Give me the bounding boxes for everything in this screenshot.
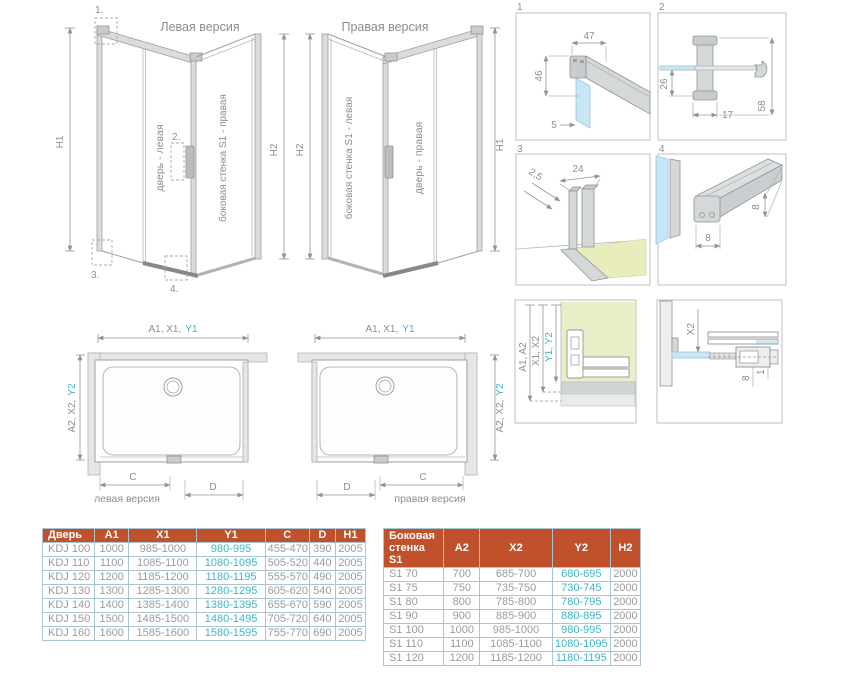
dim-c-label: C: [129, 472, 136, 483]
dim-17-label: 17: [722, 110, 734, 121]
dim-d-label: D: [343, 482, 350, 493]
plan-view-left: A1, X1,Y1 A2, X2,Y2 C D левая версия: [55, 318, 290, 518]
h1-dimension-label: H1: [55, 135, 66, 148]
table-cell: 700: [444, 568, 480, 582]
table-cell: 490: [309, 571, 335, 585]
h1-dimension: H1: [490, 28, 506, 251]
door-label: дверь - правая: [413, 122, 425, 194]
table-cell: 980-995: [197, 543, 265, 557]
dim-5-label: 5: [551, 120, 557, 131]
table-cell: 2005: [335, 627, 365, 641]
table-cell: 2005: [335, 571, 365, 585]
table-cell: 985-1000: [480, 624, 552, 638]
table-cell: 1580-1595: [197, 627, 265, 641]
table-cell: 455-470: [265, 543, 309, 557]
table-cell: KDJ 160: [43, 627, 95, 641]
table-row: KDJ 16016001585-16001580-1595755-7706902…: [43, 627, 366, 641]
left-version-title: Левая версия: [160, 20, 239, 34]
table-row: S1 1001000985-1000980-9952000: [384, 624, 641, 638]
column-header: H1: [335, 529, 365, 543]
table-cell: KDJ 100: [43, 543, 95, 557]
table-row: KDJ 15015001485-15001480-1495705-7206402…: [43, 613, 366, 627]
dim-c: C: [100, 472, 170, 490]
table-cell: 780-795: [552, 596, 610, 610]
table-cell: 685-700: [480, 568, 552, 582]
table-cell: 2005: [335, 557, 365, 571]
table-cell: 785-800: [480, 596, 552, 610]
top-dimension: A1, X1,Y1: [315, 324, 465, 343]
side-wall-size-table: Боковая стенка S1A2X2Y2H2S1 70700685-700…: [383, 528, 641, 666]
dim-46-label: 46: [534, 70, 545, 82]
door-panel: дверь - правая: [383, 26, 483, 276]
table-row: S1 11011001085-11001080-10952000: [384, 638, 641, 652]
table-cell: 1100: [95, 557, 129, 571]
callout-1-label: 1.: [95, 5, 103, 16]
left-version-drawing: Левая версия H1 дверь - левая боковая ст…: [40, 0, 295, 300]
dim-26-label: 26: [659, 78, 670, 90]
x2-detail: X2 8 1: [652, 295, 787, 430]
callout-2: 2.: [171, 132, 184, 180]
table-header-row: Боковая стенка S1A2X2Y2H2: [384, 529, 641, 568]
door-panel: дверь - левая: [97, 26, 202, 276]
table-cell: 2005: [335, 599, 365, 613]
column-header: A1: [95, 529, 129, 543]
side-dimension-label: A2, X2,Y2: [67, 383, 78, 432]
table-cell: 1085-1100: [480, 638, 552, 652]
dim-y1-y2-label: Y1, Y2: [544, 332, 555, 362]
plan-view-right: A1, X1,Y1 A2, X2,Y2 D C правая версия: [290, 318, 520, 518]
table-cell: 730-745: [552, 582, 610, 596]
table-cell: 1385-1400: [129, 599, 197, 613]
table-row: KDJ 12012001185-12001180-1195555-5704902…: [43, 571, 366, 585]
table-cell: 1085-1100: [129, 557, 197, 571]
column-header: X1: [129, 529, 197, 543]
side-dimension: A2, X2,Y2: [67, 355, 85, 460]
table-cell: 1285-1300: [129, 585, 197, 599]
column-header: Боковая стенка S1: [384, 529, 444, 568]
table-cell: 1180-1195: [197, 571, 265, 585]
table-cell: 1480-1495: [197, 613, 265, 627]
column-header: D: [309, 529, 335, 543]
detail-2-number: 2: [659, 2, 665, 13]
table-cell: 705-720: [265, 613, 309, 627]
dim-c: C: [380, 472, 463, 490]
table-row: S1 12012001185-12001180-11952000: [384, 652, 641, 666]
table-cell: 800: [444, 596, 480, 610]
detail-4-number: 4: [659, 144, 665, 155]
table-cell: S1 120: [384, 652, 444, 666]
table-cell: 590: [309, 599, 335, 613]
side-wall-panel: боковая стенка S1 - правая: [196, 34, 261, 275]
h2-dimension-label: H2: [295, 143, 306, 156]
column-header: Дверь: [43, 529, 95, 543]
table-cell: KDJ 130: [43, 585, 95, 599]
table-cell: 2000: [610, 638, 640, 652]
table-cell: 390: [309, 543, 335, 557]
table-cell: 2000: [610, 568, 640, 582]
column-header: A2: [444, 529, 480, 568]
table-cell: 2005: [335, 613, 365, 627]
table-cell: S1 80: [384, 596, 444, 610]
callout-3-label: 3.: [91, 270, 99, 281]
table-cell: 2000: [610, 652, 640, 666]
shower-tray: [95, 360, 248, 463]
table-cell: 980-995: [552, 624, 610, 638]
table-cell: 2005: [335, 543, 365, 557]
column-header: H2: [610, 529, 640, 568]
detail-1-number: 1: [517, 2, 523, 13]
table-cell: 1200: [95, 571, 129, 585]
table-cell: 900: [444, 610, 480, 624]
dim-1-label: 1: [756, 369, 767, 375]
table-cell: KDJ 140: [43, 599, 95, 613]
table-cell: 1600: [95, 627, 129, 641]
h1-dimension: H1: [55, 28, 75, 251]
table-cell: 1585-1600: [129, 627, 197, 641]
detail-2: 2 26 17 58: [652, 0, 797, 145]
plan-left-caption: левая версия: [94, 493, 160, 505]
detail-3: 3 24 2,5: [510, 143, 655, 288]
side-dimension: A2, X2,Y2: [490, 355, 506, 460]
table-cell: S1 100: [384, 624, 444, 638]
table-cell: 440: [309, 557, 335, 571]
table-cell: S1 75: [384, 582, 444, 596]
table-cell: 1080-1095: [552, 638, 610, 652]
wall-section-drawing: [561, 302, 635, 406]
table-cell: 880-895: [552, 610, 610, 624]
door-size-table: ДверьA1X1Y1CDH1KDJ 1001000985-1000980-99…: [42, 528, 366, 641]
table-cell: S1 90: [384, 610, 444, 624]
callout-2-label: 2.: [172, 132, 180, 143]
h2-dimension: H2: [295, 34, 315, 259]
table-cell: 680-695: [552, 568, 610, 582]
table-cell: 755-770: [265, 627, 309, 641]
table-cell: 1400: [95, 599, 129, 613]
table-cell: 1185-1200: [480, 652, 552, 666]
table-cell: 1380-1395: [197, 599, 265, 613]
dim-47-label: 47: [583, 31, 595, 42]
detail-3-number: 3: [517, 144, 523, 155]
side-wall-glass: [312, 362, 317, 462]
table-cell: 540: [309, 585, 335, 599]
h2-dimension-label: H2: [269, 143, 280, 156]
dim-c-label: C: [419, 472, 426, 483]
door-handle: [385, 146, 393, 178]
table-cell: 690: [309, 627, 335, 641]
table-cell: 505-520: [265, 557, 309, 571]
detail-4: 4 8 8: [652, 143, 797, 288]
table-cell: S1 70: [384, 568, 444, 582]
dim-x1-x2-label: X1, X2: [531, 336, 542, 366]
door-label: дверь - левая: [154, 124, 166, 191]
h2-dimension: H2: [269, 34, 289, 259]
table-cell: KDJ 150: [43, 613, 95, 627]
table-cell: KDJ 120: [43, 571, 95, 585]
plan-right-caption: правая версия: [394, 493, 465, 505]
table-cell: 1000: [95, 543, 129, 557]
side-dimension-label: A2, X2,Y2: [495, 383, 506, 432]
column-header: C: [265, 529, 309, 543]
table-cell: 2000: [610, 582, 640, 596]
table-cell: 605-620: [265, 585, 309, 599]
table-cell: 1500: [95, 613, 129, 627]
table-cell: 2000: [610, 596, 640, 610]
table-cell: 2000: [610, 624, 640, 638]
dim-d-label: D: [209, 482, 216, 493]
dim-8-width-label: 8: [705, 233, 711, 244]
table-cell: 1280-1295: [197, 585, 265, 599]
table-cell: S1 110: [384, 638, 444, 652]
table-cell: 735-750: [480, 582, 552, 596]
dim-24-label: 24: [572, 164, 584, 175]
side-wall-label: боковая стенка S1 - правая: [217, 94, 229, 222]
top-dimension-label: A1, X1,Y1: [148, 324, 197, 335]
table-row: S1 80800785-800780-7952000: [384, 596, 641, 610]
top-dimension: A1, X1,Y1: [98, 324, 248, 343]
dim-d: D: [185, 480, 243, 500]
table-cell: 655-670: [265, 599, 309, 613]
table-cell: 555-570: [265, 571, 309, 585]
table-cell: 1080-1095: [197, 557, 265, 571]
table-cell: 885-900: [480, 610, 552, 624]
table-cell: KDJ 110: [43, 557, 95, 571]
top-dimension-label: A1, X1,Y1: [365, 324, 414, 335]
callout-4: 4.: [165, 256, 187, 295]
table-cell: 1180-1195: [552, 652, 610, 666]
right-version-title: Правая версия: [342, 20, 429, 34]
table-cell: 1485-1500: [129, 613, 197, 627]
table-row: KDJ 1001000985-1000980-995455-4703902005: [43, 543, 366, 557]
column-header: Y2: [552, 529, 610, 568]
dim-8-height-label: 8: [751, 204, 762, 210]
table-cell: 1200: [444, 652, 480, 666]
dim-8-label: 8: [741, 375, 752, 381]
right-version-drawing: Правая версия H2 боковая стенка S1 - лев…: [295, 0, 510, 300]
side-wall-glass: [243, 362, 248, 462]
callout-4-label: 4.: [170, 284, 178, 295]
table-cell: 985-1000: [129, 543, 197, 557]
table-row: KDJ 13013001285-13001280-1295605-6205402…: [43, 585, 366, 599]
h1-dimension-label: H1: [495, 138, 506, 151]
detail-1: 1 47 46 5: [510, 0, 655, 145]
door-handle: [186, 146, 194, 178]
side-wall-label: боковая стенка S1 - левая: [343, 97, 355, 219]
side-wall-panel: боковая стенка S1 - левая: [322, 34, 387, 275]
technical-sheet: Левая версия H1 дверь - левая боковая ст…: [0, 0, 841, 680]
door-guide: [374, 456, 388, 463]
table-header-row: ДверьA1X1Y1CDH1: [43, 529, 366, 543]
table-row: S1 90900885-900880-8952000: [384, 610, 641, 624]
section-detail: A1, A2 X1, X2 Y1, Y2: [510, 295, 655, 430]
table-cell: 2000: [610, 610, 640, 624]
table-row: KDJ 11011001085-11001080-1095505-5204402…: [43, 557, 366, 571]
door-guide: [167, 456, 181, 463]
table-cell: 1100: [444, 638, 480, 652]
dim-58-label: 58: [757, 100, 768, 112]
table-row: KDJ 14014001385-14001380-1395655-6705902…: [43, 599, 366, 613]
table-cell: 2005: [335, 585, 365, 599]
shower-tray: [312, 360, 467, 463]
dim-x2-label: X2: [686, 322, 697, 335]
table-cell: 1300: [95, 585, 129, 599]
table-cell: 750: [444, 582, 480, 596]
table-row: S1 75750735-750730-7452000: [384, 582, 641, 596]
dim-d: D: [317, 480, 375, 500]
table-cell: 640: [309, 613, 335, 627]
column-header: Y1: [197, 529, 265, 543]
column-header: X2: [480, 529, 552, 568]
table-row: S1 70700685-700680-6952000: [384, 568, 641, 582]
table-cell: 1000: [444, 624, 480, 638]
table-cell: 1185-1200: [129, 571, 197, 585]
